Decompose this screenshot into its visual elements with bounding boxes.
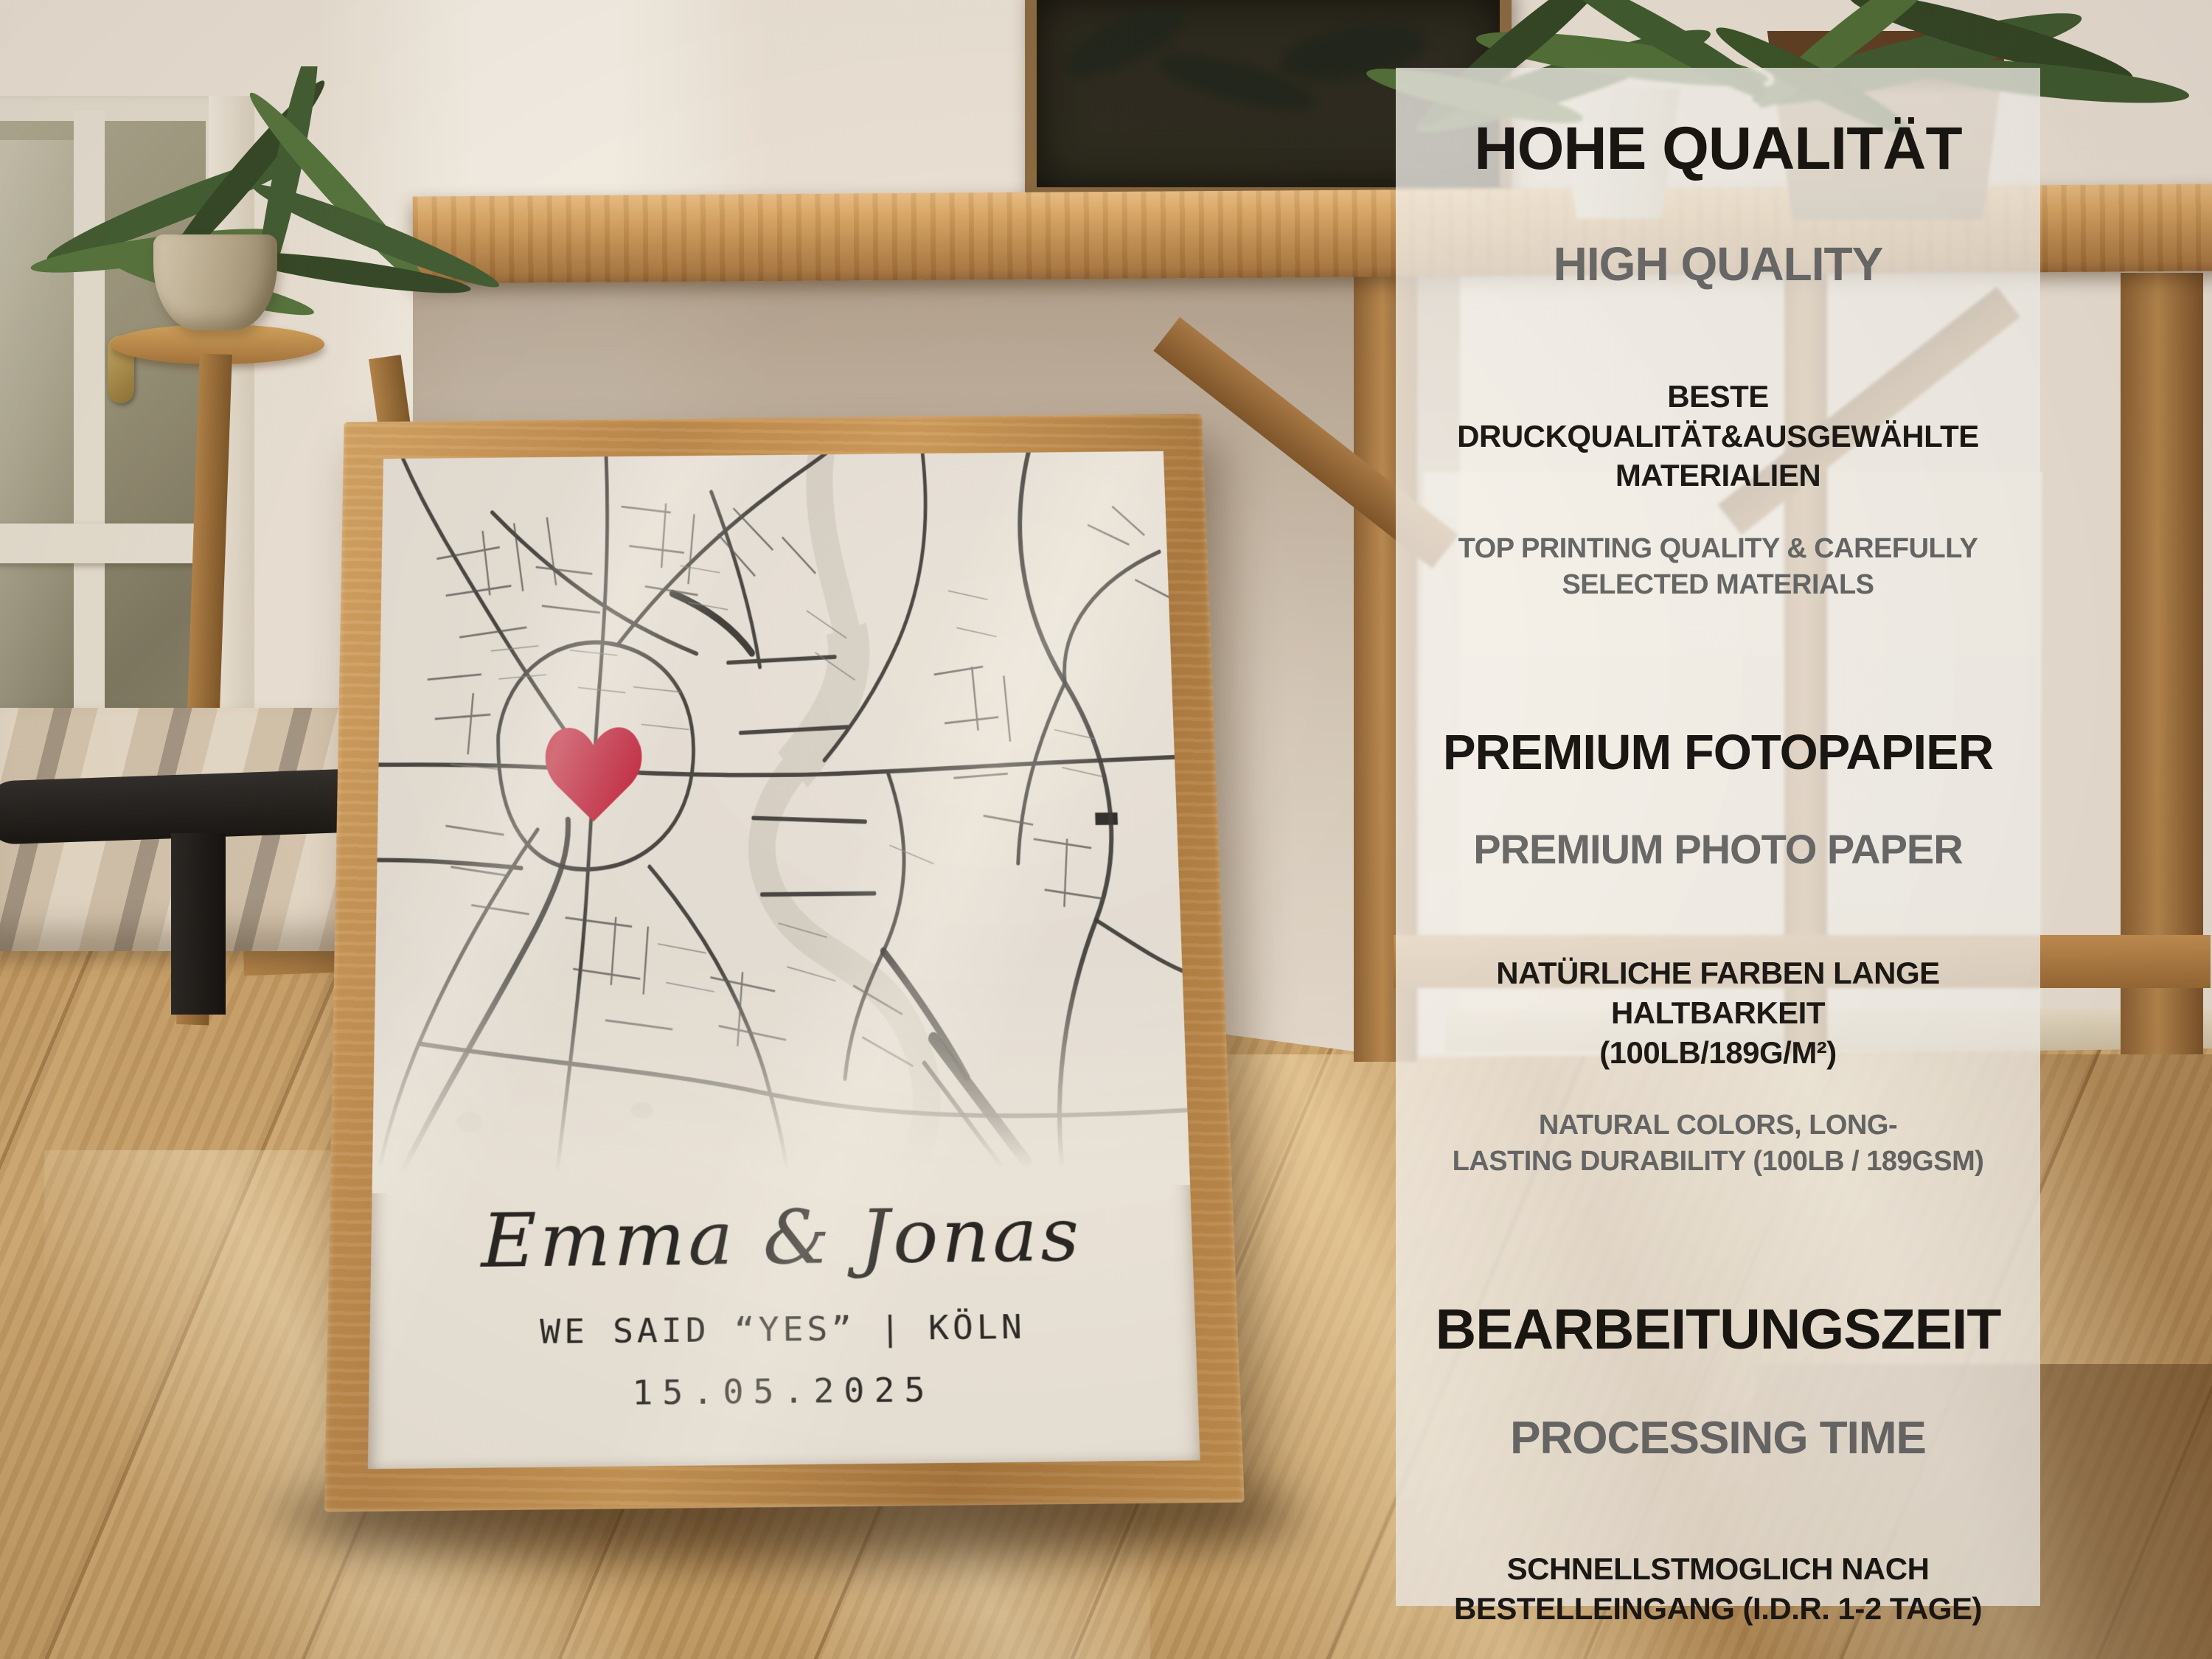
poster-date: 15.05.2025 (369, 1367, 1198, 1416)
product-photo-scene: Emma & Jonas WE SAID “YES” | KÖLN 15.05.… (0, 0, 2212, 1659)
section-heading-de: BEARBEITUNGSZEIT (1436, 1299, 2001, 1360)
map-fade (372, 959, 1191, 1193)
section-body-de: BESTE DRUCKQUALITÄT&AUSGEWÄHLTE MATERIAL… (1457, 377, 1979, 495)
section-body-de: SCHNELLSTMOGLICH NACH BESTELLEINGANG (I.… (1454, 1549, 1982, 1629)
section-heading-en: PREMIUM PHOTO PAPER (1473, 827, 1962, 872)
chair-leg (171, 833, 226, 1015)
framed-map-poster: Emma & Jonas WE SAID “YES” | KÖLN 15.05.… (324, 414, 1245, 1512)
info-panel: HOHE QUALITÄT HIGH QUALITY BESTE DRUCKQU… (1396, 68, 2040, 1606)
section-body-de: NATÜRLICHE FARBEN LANGE HALTBARKEIT (100… (1496, 953, 1939, 1072)
poster-paper: Emma & Jonas WE SAID “YES” | KÖLN 15.05.… (368, 451, 1200, 1469)
poster-caption: WE SAID “YES” | KÖLN (369, 1306, 1196, 1354)
section-heading-en: PROCESSING TIME (1510, 1413, 1926, 1464)
window-mullion-horizontal (0, 524, 215, 563)
potted-plant (29, 66, 501, 376)
section-body-en: TOP PRINTING QUALITY & CAREFULLY SELECTE… (1458, 531, 1978, 602)
section-body-en: NATURAL COLORS, LONG- LASTING DURABILITY… (1453, 1107, 1984, 1179)
section-heading-de: HOHE QUALITÄT (1474, 116, 1961, 182)
section-heading-en: HIGH QUALITY (1554, 238, 1883, 290)
poster-couple-names: Emma & Jonas (371, 1190, 1194, 1285)
plant-pot (153, 234, 277, 330)
section-heading-de: PREMIUM FOTOPAPIER (1443, 726, 1993, 779)
